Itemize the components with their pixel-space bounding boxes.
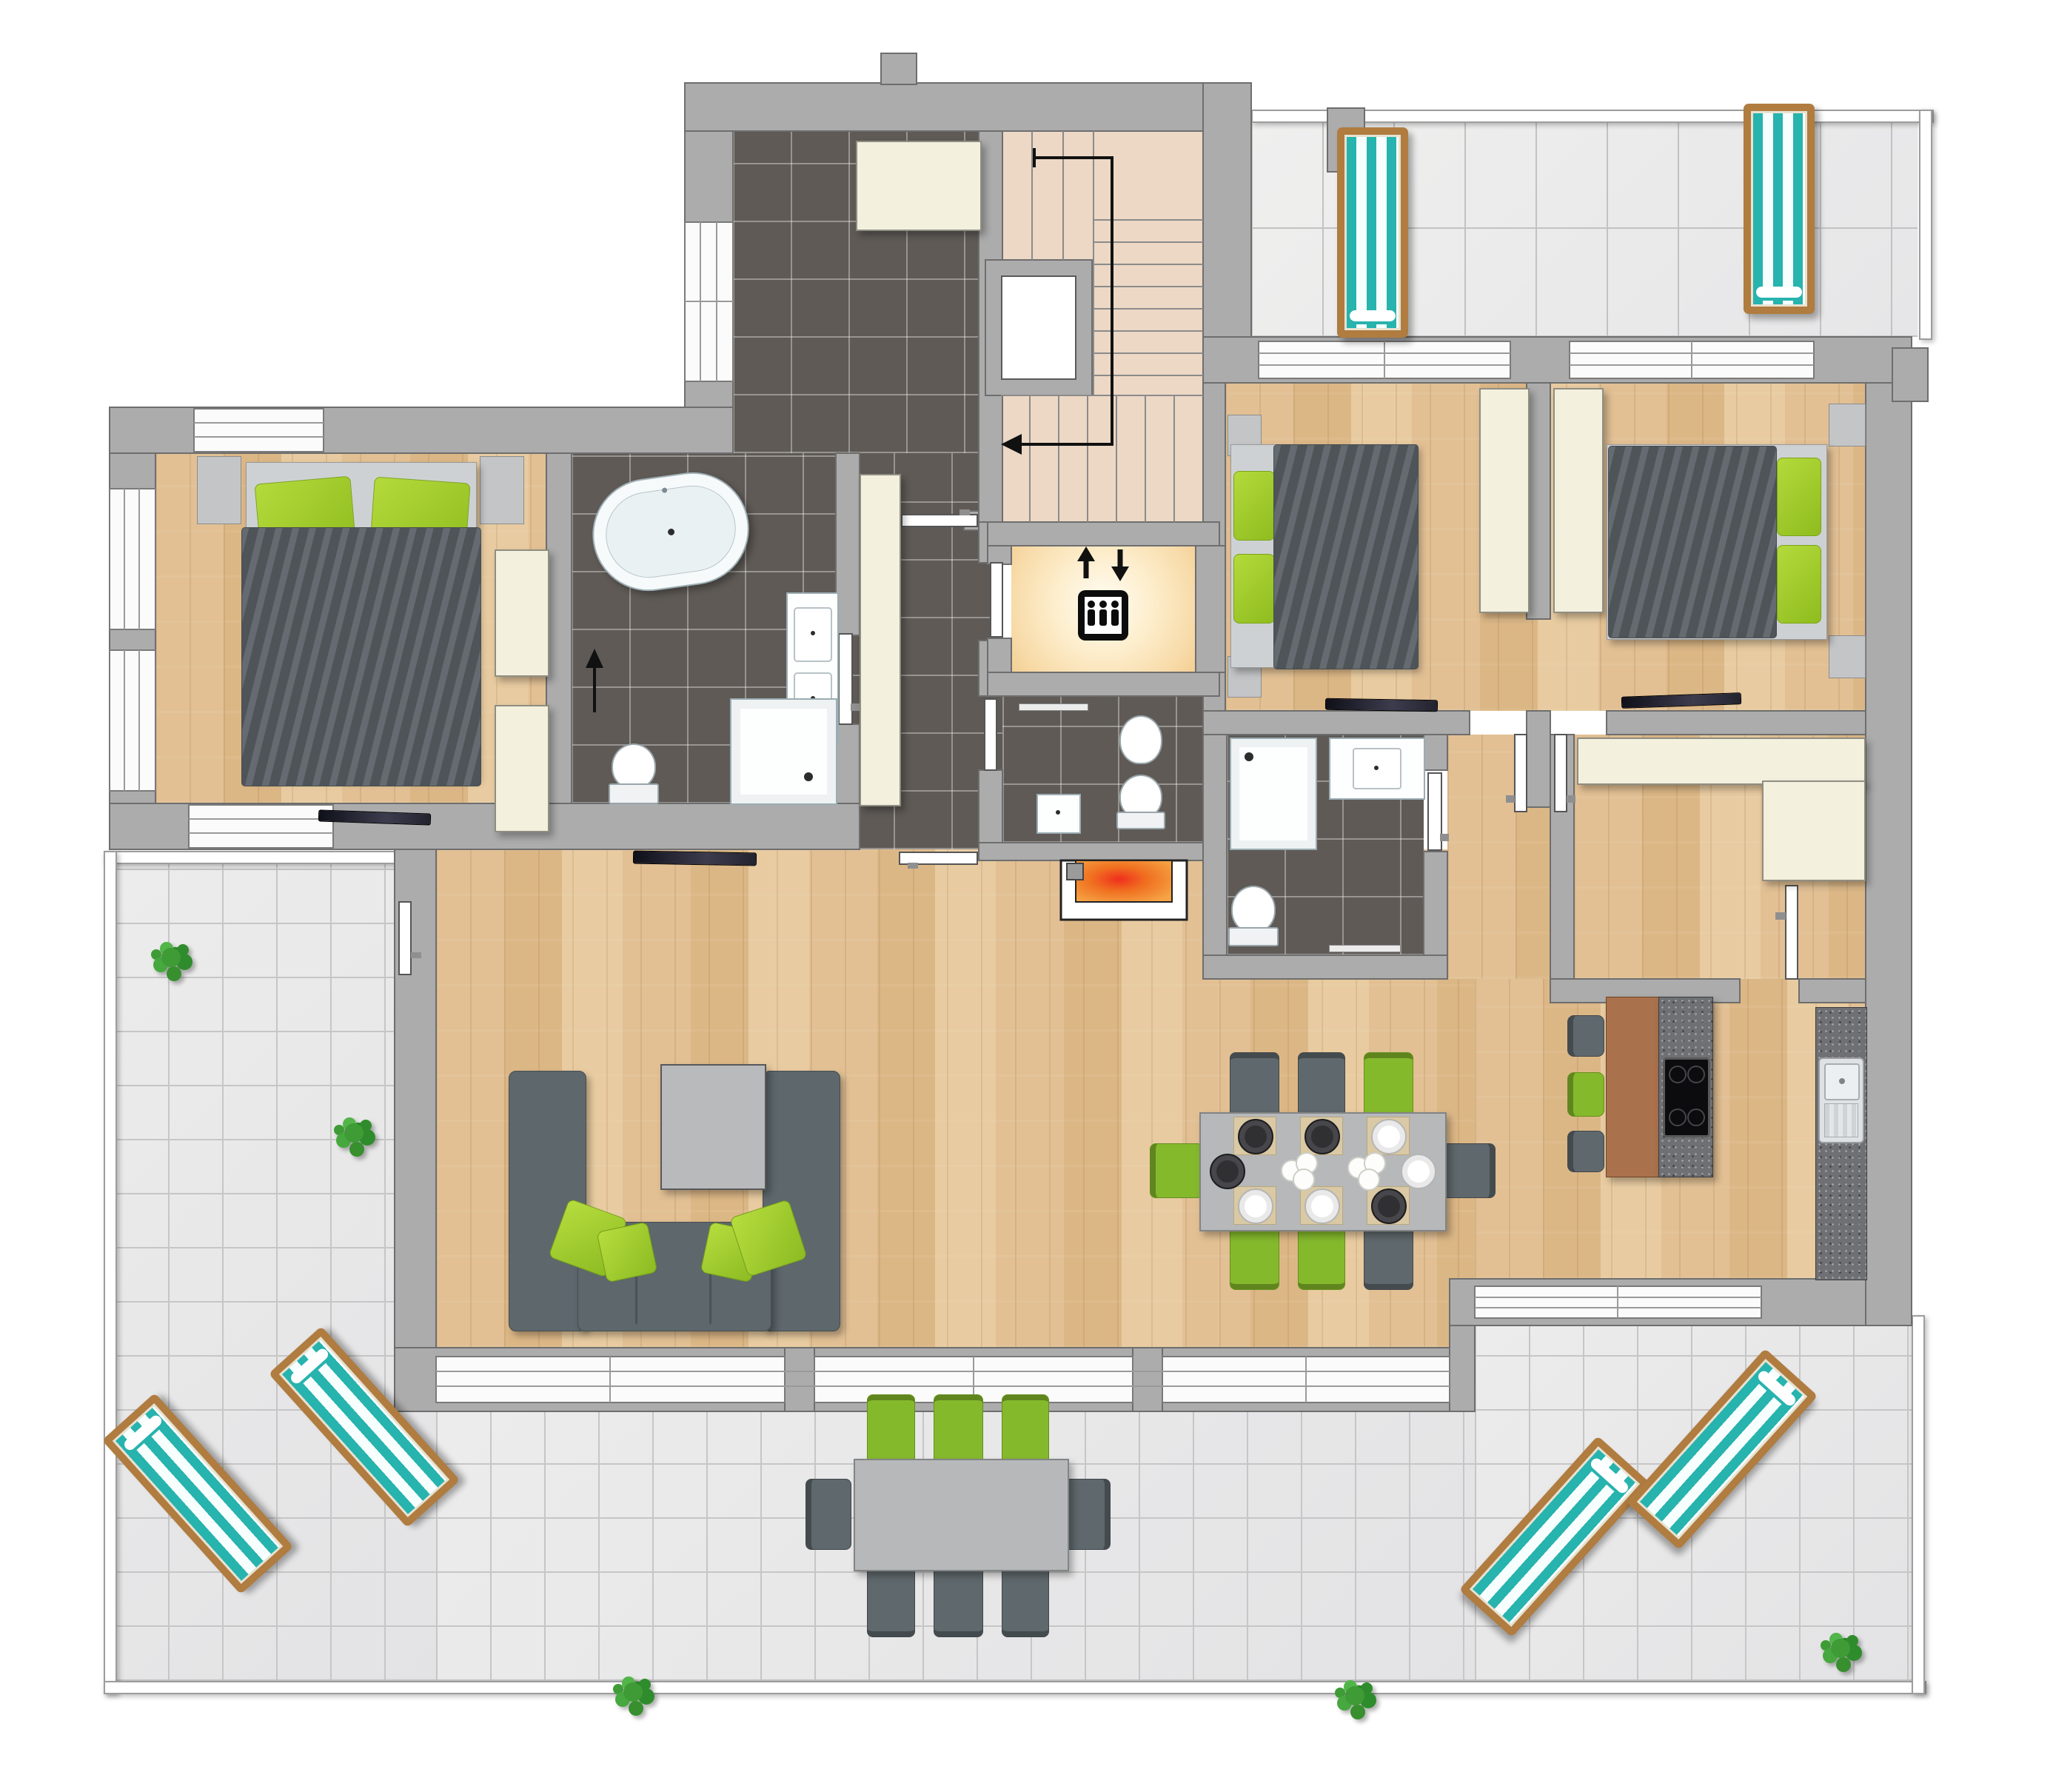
plant xyxy=(623,1682,643,1702)
wardrobe xyxy=(495,549,549,677)
outdoor-chair-gray xyxy=(1065,1479,1111,1550)
bar-stool-green xyxy=(1567,1072,1604,1117)
plate xyxy=(1210,1154,1245,1189)
ensuite-door xyxy=(1428,773,1441,850)
elevator-down-arrow-icon xyxy=(1111,566,1129,581)
plate xyxy=(1305,1188,1340,1224)
nightstand xyxy=(1829,404,1866,447)
towel-rail xyxy=(1329,945,1401,952)
wc-toilet xyxy=(1119,715,1162,764)
shower-drain xyxy=(1245,752,1253,761)
outdoor-chair-gray xyxy=(867,1565,915,1637)
nightstand xyxy=(197,456,241,524)
bed-middle-duvet xyxy=(1273,444,1419,669)
toilet xyxy=(612,743,656,789)
pillow-green xyxy=(1777,458,1821,536)
sun-lounger xyxy=(1337,127,1408,338)
sofa-right-arm xyxy=(763,1071,840,1331)
wardrobe xyxy=(495,705,549,832)
outdoor-chair-gray xyxy=(934,1565,983,1637)
dining-chair-green xyxy=(1364,1052,1413,1120)
bathroom-entry-arrow-icon xyxy=(586,649,603,712)
toilet-tank xyxy=(609,783,659,804)
flower-centerpiece xyxy=(1281,1152,1318,1189)
hall-tall-cabinet xyxy=(860,474,901,806)
shower-drain xyxy=(804,772,813,781)
bedroom-middle-door xyxy=(1515,735,1527,812)
ensuite-toilet xyxy=(1231,886,1276,933)
pillow-green xyxy=(1777,545,1821,623)
wc-door xyxy=(985,699,997,770)
pillow-green xyxy=(1233,471,1275,541)
plate xyxy=(1371,1188,1407,1224)
plate xyxy=(1238,1188,1273,1224)
outdoor-chair-gray xyxy=(806,1479,851,1550)
wardrobe xyxy=(1553,388,1604,613)
living-wall-tv xyxy=(633,851,757,866)
plate xyxy=(1401,1154,1436,1189)
outdoor-chair-green xyxy=(1002,1394,1049,1464)
bedroom-middle-tv xyxy=(1325,698,1438,712)
island-wood-top xyxy=(1606,997,1660,1177)
floor-plan xyxy=(0,0,2053,1792)
plant xyxy=(1831,1639,1850,1658)
closet-door xyxy=(1786,886,1798,979)
nightstand xyxy=(480,456,524,524)
cooktop xyxy=(1663,1057,1710,1137)
plant xyxy=(161,948,181,967)
dining-chair-gray xyxy=(1442,1143,1496,1198)
pillow-green xyxy=(1233,554,1275,623)
dining-chair-gray xyxy=(1364,1222,1413,1290)
basin xyxy=(794,607,832,662)
ensuite-shower xyxy=(1230,738,1317,850)
elevator-icon xyxy=(1077,546,1129,641)
bar-stool-gray xyxy=(1567,1015,1604,1057)
plate xyxy=(1238,1119,1273,1154)
wardrobe xyxy=(1479,388,1530,613)
outdoor-chair-gray xyxy=(1002,1565,1049,1637)
hand-basin xyxy=(1036,794,1081,834)
dining-chair-gray xyxy=(1230,1052,1279,1120)
dining-chair-green xyxy=(1150,1143,1203,1198)
plate xyxy=(1305,1119,1340,1154)
nightstand xyxy=(1829,635,1866,678)
bidet-lid xyxy=(1116,812,1165,829)
plant xyxy=(344,1123,364,1143)
kitchen-counter xyxy=(1815,1007,1867,1280)
sun-lounger xyxy=(1744,104,1815,314)
dining-chair-gray xyxy=(1298,1052,1345,1120)
bedroom-right-door xyxy=(1555,735,1567,812)
closet-side-run xyxy=(1762,780,1866,881)
terrace-door xyxy=(399,902,411,974)
hall-closet xyxy=(856,141,982,231)
outdoor-chair-green xyxy=(867,1394,915,1464)
bed-left-duvet xyxy=(241,527,481,786)
shower xyxy=(730,698,837,805)
hall-living-door xyxy=(900,852,977,864)
coffee-table xyxy=(660,1064,766,1190)
dining-chair-green xyxy=(1230,1222,1279,1290)
flower-centerpiece xyxy=(1347,1152,1384,1189)
ensuite-toilet-tank xyxy=(1228,927,1279,946)
elevator-door xyxy=(991,563,1002,637)
hall-glass-door xyxy=(902,515,977,526)
kitchen-sink xyxy=(1818,1057,1864,1143)
outdoor-table xyxy=(854,1459,1069,1571)
plant xyxy=(1345,1686,1364,1705)
closet-top-run xyxy=(1577,738,1866,785)
fireplace xyxy=(1061,860,1187,920)
bar-stool-gray xyxy=(1567,1131,1604,1172)
dining-chair-green xyxy=(1298,1222,1345,1290)
main-bathroom-door xyxy=(839,634,852,724)
sofa-cushion-green xyxy=(596,1221,657,1283)
plate xyxy=(1371,1119,1407,1154)
elevator-up-arrow-icon xyxy=(1077,546,1095,561)
stairwell-void xyxy=(1002,276,1076,379)
outdoor-chair-green xyxy=(934,1394,983,1464)
towel-rail xyxy=(1019,703,1088,711)
ensuite-washbasin xyxy=(1329,738,1425,800)
bed-right-duvet xyxy=(1608,446,1777,638)
